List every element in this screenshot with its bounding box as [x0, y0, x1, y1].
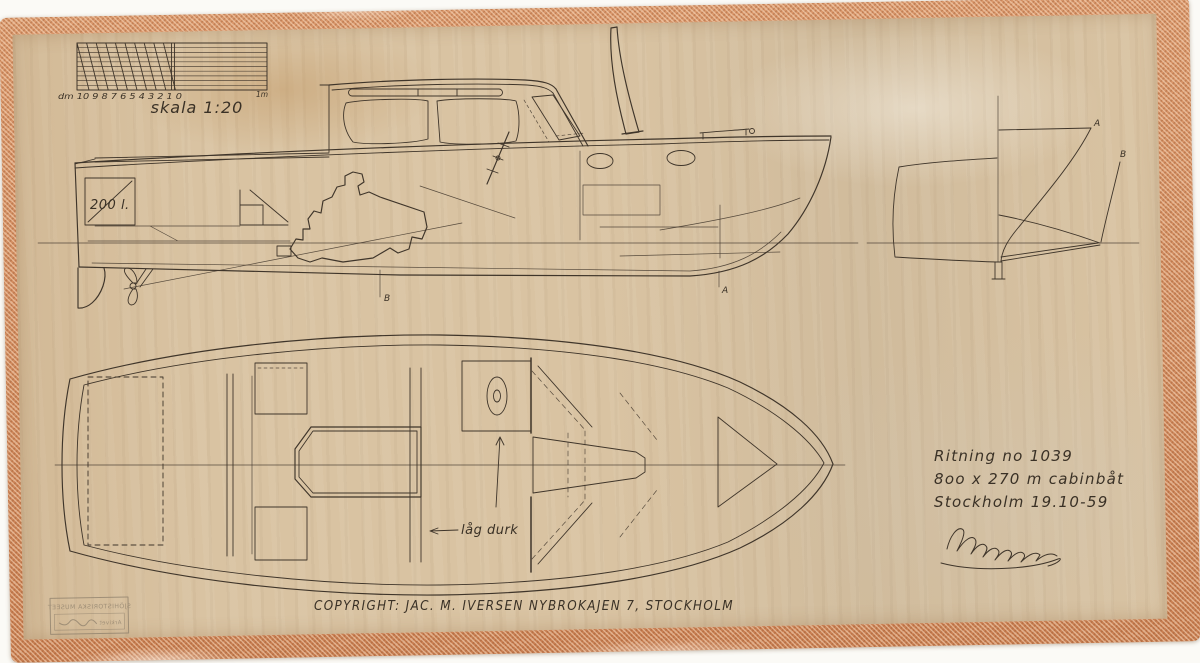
bow-sections — [992, 128, 1120, 279]
mast — [611, 27, 643, 134]
deck-plan-view: låg durk — [55, 335, 845, 595]
boat-dimensions: 8oo x 270 m cabinbåt — [934, 470, 1124, 488]
body-plan-view: A B — [867, 96, 1139, 279]
aft-locker-dashed — [88, 377, 163, 545]
stamp-handwritten-number — [59, 619, 96, 626]
foredeck-hatch — [718, 417, 777, 507]
drawing-number: Ritning no 1039 — [934, 447, 1073, 465]
fuel-tank-label: 200 l. — [90, 198, 130, 213]
seat-starboard — [255, 507, 307, 560]
transom-section — [893, 158, 997, 262]
cockpit-coaming — [75, 153, 329, 164]
seat-port — [255, 363, 307, 414]
body-plan-marker-a: A — [1093, 119, 1100, 129]
blueprint-linework: dm 10 9 8 7 6 5 4 3 2 1 0 1m skala 1:20 — [0, 0, 1200, 659]
interior-details — [85, 151, 780, 258]
archival-drawing-scan: dm 10 9 8 7 6 5 4 3 2 1 0 1m skala 1:20 — [0, 0, 1200, 659]
profile-view: B A 200 l. — [38, 27, 858, 308]
body-plan-marker-b: B — [1120, 150, 1126, 160]
wc-hatch-box — [462, 361, 531, 431]
floor-label: låg durk — [461, 523, 518, 538]
arrow-left — [430, 528, 458, 534]
profile-marker-b: B — [384, 294, 390, 304]
roof-handrail — [349, 89, 503, 96]
copyright-line: COPYRIGHT: JAC. M. IVERSEN NYBROKAJEN 7,… — [314, 599, 734, 614]
scale-caption: skala 1:20 — [151, 98, 244, 117]
shaft-strut — [136, 269, 153, 287]
museum-stamp: SJÖHISTORISKA MUSEET Arkivet — [47, 597, 131, 634]
scale-ruler: dm 10 9 8 7 6 5 4 3 2 1 0 1m skala 1:20 — [58, 43, 268, 117]
title-block: Ritning no 1039 8oo x 270 m cabinbåt Sto… — [934, 447, 1124, 569]
porthole-aft — [587, 154, 613, 169]
profile-marker-a: A — [721, 286, 728, 296]
companionway-steps — [240, 190, 288, 225]
windshield — [532, 95, 580, 140]
place-and-date: Stockholm 19.10-59 — [934, 493, 1109, 511]
steering-wheel — [487, 132, 509, 184]
floor-annotation: låg durk — [430, 437, 518, 538]
stamp-line-1: SJÖHISTORISKA MUSEET — [47, 601, 130, 611]
section-a-curve — [1001, 128, 1091, 261]
signature — [941, 529, 1060, 569]
engine — [277, 172, 427, 262]
ruler-meter-label: 1m — [256, 90, 268, 99]
engine-box — [295, 427, 421, 497]
cabin-window-1 — [344, 99, 428, 143]
rudder — [78, 268, 105, 308]
arrow-up — [496, 437, 504, 507]
galley-unit — [583, 185, 660, 215]
section-b-curve — [1101, 162, 1120, 242]
stamp-line-2: Arkivet — [99, 620, 122, 626]
bow-chine — [660, 198, 800, 230]
keel-foot — [992, 262, 1005, 279]
propeller-shaft-line — [124, 223, 462, 289]
porthole-fwd — [667, 151, 695, 166]
